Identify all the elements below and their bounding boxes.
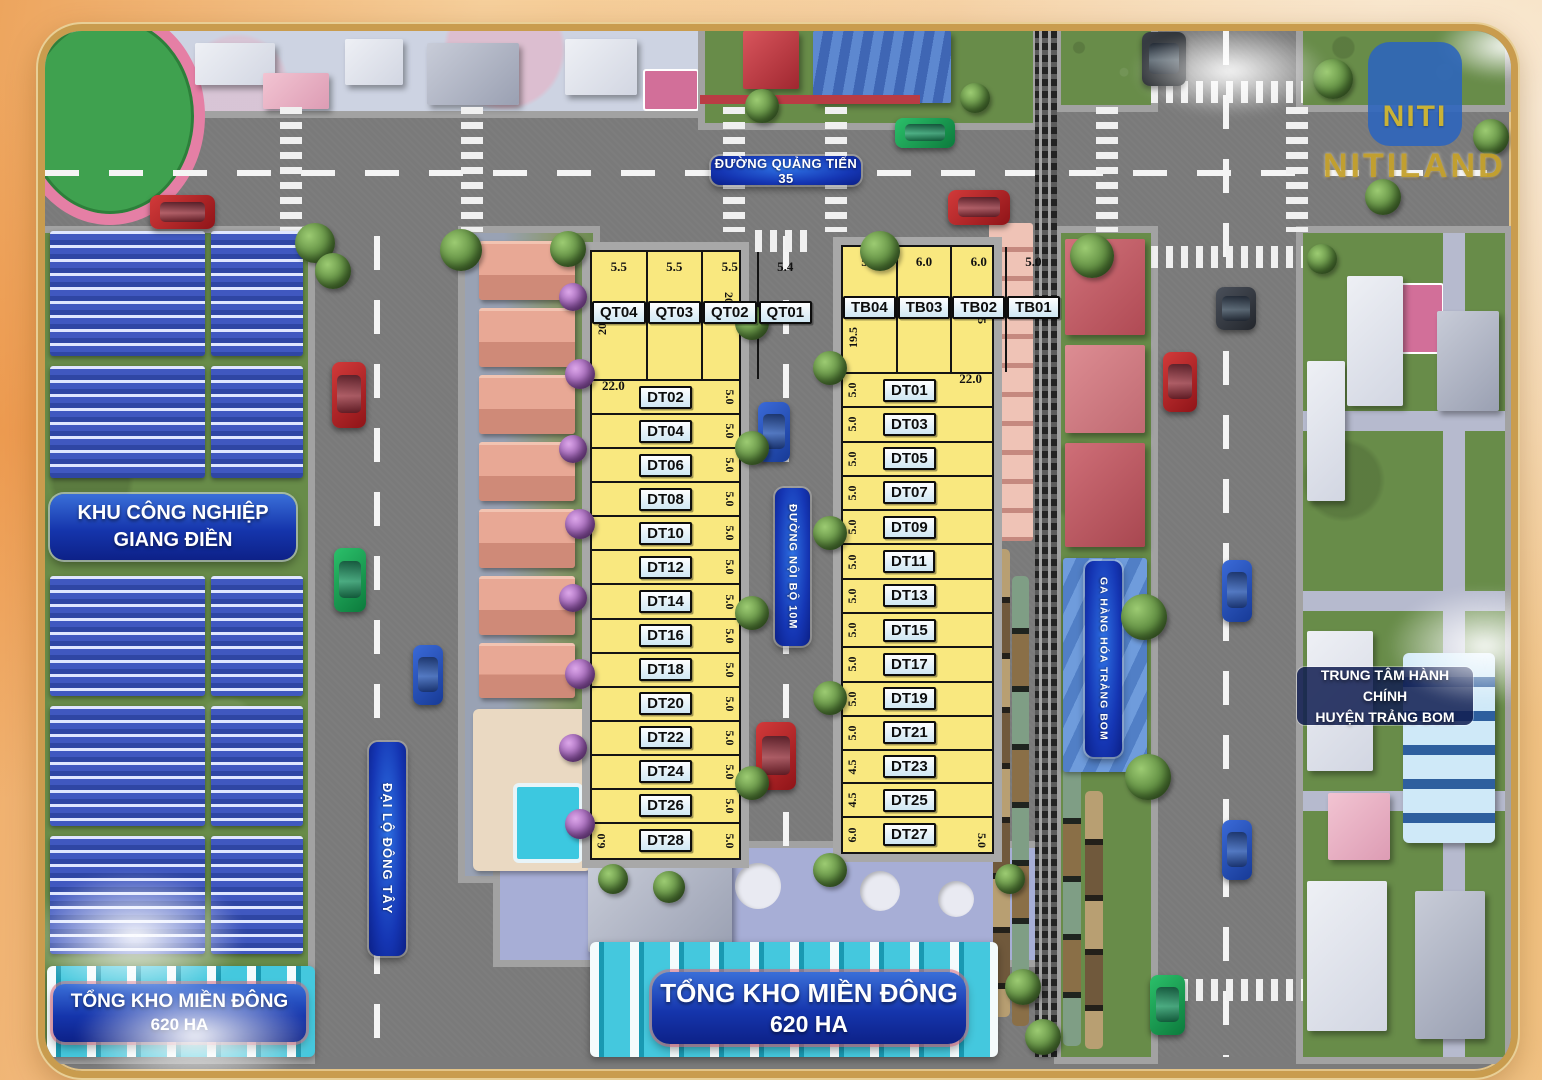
plot-row[interactable]: 5.0 DT17: [843, 646, 992, 680]
dim-label: 5.0: [845, 485, 860, 500]
map-frame: 5.5 QT04 5.5 QT03 5.5 QT02 5.4 QT01: [38, 24, 1518, 1078]
tree: [440, 229, 482, 271]
car: [334, 548, 366, 612]
banner-line: TRUNG TÂM HÀNH CHÍNH: [1297, 665, 1473, 707]
plot-row[interactable]: 5.0 DT03: [843, 406, 992, 440]
industrial-warehouse: [50, 366, 205, 478]
plot-label: DT04: [639, 420, 692, 443]
dt-rows: 5.0 DT01 5.0 DT03 5.0 DT05 5.0: [843, 372, 992, 852]
tree: [550, 231, 586, 267]
dim-label: 5.0: [722, 526, 737, 541]
plot-row[interactable]: DT26 5.0: [592, 788, 739, 822]
plot-row[interactable]: 5.0 DT19: [843, 681, 992, 715]
crosswalk: [461, 107, 483, 232]
dim-label: 22.0: [959, 371, 982, 387]
tree: [813, 516, 847, 550]
dim-label: 19.5: [846, 327, 861, 348]
tree: [1121, 594, 1167, 640]
dim-label: 5.0: [845, 554, 860, 569]
train-wagons: [1085, 791, 1103, 1049]
dim-label: 5.0: [722, 628, 737, 643]
plot-row[interactable]: DT08 5.0: [592, 481, 739, 515]
plot-label: DT08: [639, 488, 692, 511]
flower-tree: [559, 283, 587, 311]
dim-label: 5.0: [722, 492, 737, 507]
plot-row[interactable]: 5.0 DT09: [843, 509, 992, 543]
plot-label: DT23: [883, 755, 936, 778]
banner-line: 620 HA: [151, 1014, 209, 1036]
nitiland-logo-text: NITILAND: [1323, 147, 1503, 186]
banner-line: GIANG ĐIỀN: [114, 527, 233, 554]
plot-row[interactable]: 4.5 DT23: [843, 749, 992, 782]
plot-row[interactable]: DT22 5.0: [592, 720, 739, 754]
dim-label: 5.0: [845, 691, 860, 706]
masterplan-map: 5.5 QT04 5.5 QT03 5.5 QT02 5.4 QT01: [45, 31, 1497, 1057]
dim-label: 5.0: [722, 390, 737, 405]
tree: [735, 596, 769, 630]
plot-label: DT21: [883, 721, 936, 744]
tree: [995, 864, 1025, 894]
crosswalk: [1151, 246, 1303, 268]
villa: [479, 375, 575, 434]
car: [413, 645, 443, 705]
plot-label: DT05: [883, 447, 936, 470]
qt-plot-row: 5.5 QT04 5.5 QT03 5.5 QT02 5.4 QT01: [592, 252, 739, 379]
plot-label: DT10: [639, 522, 692, 545]
dim-label: 5.0: [722, 798, 737, 813]
campus-path: [1303, 591, 1505, 611]
crosswalk: [1286, 107, 1308, 232]
plot-label: DT11: [883, 550, 935, 573]
dt-rows: DT02 5.0 DT04 5.0 DT06 5.0 DT08: [592, 379, 739, 858]
car: [1216, 287, 1256, 330]
dim-label: 5.0: [845, 417, 860, 432]
plot-row[interactable]: DT14 5.0: [592, 583, 739, 617]
tree: [1025, 1019, 1061, 1055]
dim-label: 5.0: [722, 833, 737, 848]
car: [150, 195, 215, 229]
building: [263, 73, 329, 109]
plot-label: DT09: [883, 516, 936, 539]
plot-row[interactable]: 5.0 DT21: [843, 715, 992, 749]
dim-label: 5.0: [722, 696, 737, 711]
station-top-green: [1061, 24, 1151, 105]
plot-label: DT07: [883, 481, 936, 504]
plot-row[interactable]: DT20 5.0: [592, 686, 739, 720]
villa: [479, 509, 575, 568]
dim-label: 5.0: [722, 730, 737, 745]
dim-label: 5.0: [722, 594, 737, 609]
plot[interactable]: 5.0 TB01: [1005, 247, 1060, 372]
banner-line: HUYỆN TRẢNG BOM: [1315, 707, 1454, 728]
tree: [735, 431, 769, 465]
niti-logo-icon: NITI: [1368, 42, 1462, 146]
tree: [1307, 244, 1337, 274]
plot-row[interactable]: DT06 5.0: [592, 447, 739, 481]
train-wagons: [1012, 576, 1029, 1026]
plot[interactable]: 6.0 TB02: [950, 247, 1005, 372]
tb-plot-row: 5.0 TB04 6.0 TB03 6.0 TB02 5.0 TB01: [843, 247, 992, 372]
industrial-warehouse: [211, 836, 303, 954]
plaza-pond: [860, 871, 900, 911]
banner-line: TỔNG KHO MIỀN ĐÔNG: [660, 977, 958, 1010]
plot-label: DT25: [883, 789, 936, 812]
tree: [1125, 754, 1171, 800]
dim-label: 5.0: [1025, 254, 1041, 270]
tree: [813, 853, 847, 887]
dim-label: 5.0: [722, 424, 737, 439]
plot[interactable]: 5.4 QT01: [757, 252, 813, 379]
building: [345, 39, 403, 85]
industrial-warehouse: [50, 576, 205, 696]
tree: [1313, 59, 1353, 99]
banner-line: 620 HA: [770, 1010, 848, 1039]
car: [332, 362, 366, 428]
plot-row[interactable]: 4.5 DT25: [843, 782, 992, 815]
flower-tree: [559, 584, 587, 612]
plot[interactable]: 6.0 TB03: [896, 247, 951, 372]
admin-building: [1307, 361, 1345, 501]
dim-label: 5.0: [845, 725, 860, 740]
plot-label: DT26: [639, 794, 692, 817]
flower-tree: [565, 659, 595, 689]
admin-building: [1415, 891, 1485, 1039]
car: [1222, 820, 1252, 880]
dim-label: 5.0: [845, 520, 860, 535]
plot-row[interactable]: 6.0 DT28 5.0: [592, 822, 739, 858]
dim-label: 5.5: [722, 259, 738, 275]
dim-label: 5.0: [845, 657, 860, 672]
dim-label: 4.5: [845, 793, 860, 808]
plot-row[interactable]: 5.0 DT07: [843, 475, 992, 509]
dim-label: 4.5: [845, 759, 860, 774]
plot-row[interactable]: DT18 5.0: [592, 652, 739, 686]
crosswalk: [1096, 107, 1118, 232]
red-wall: [700, 95, 920, 104]
tree: [813, 351, 847, 385]
plot-row[interactable]: DT04 5.0: [592, 413, 739, 447]
tree: [813, 681, 847, 715]
admin-building: [1328, 793, 1390, 860]
plot-row[interactable]: DT12 5.0: [592, 549, 739, 583]
plot-label: DT14: [639, 590, 692, 613]
plot-label: TB04: [843, 296, 896, 319]
tree: [1070, 234, 1114, 278]
car: [948, 190, 1010, 225]
tree: [653, 871, 685, 903]
plot-label: DT20: [639, 692, 692, 715]
red-building: [743, 31, 799, 89]
industrial-warehouse: [211, 706, 303, 826]
building: [565, 39, 637, 95]
industrial-warehouse: [211, 366, 303, 478]
mega-warehouse-banner: TỔNG KHO MIỀN ĐÔNG 620 HA: [652, 972, 966, 1044]
dim-label: 6.0: [971, 254, 987, 270]
dim-label: 5.4: [777, 259, 793, 275]
school-court: [643, 69, 699, 111]
plot-label: TB01: [1007, 296, 1060, 319]
warehouse-small-banner: TỔNG KHO MIỀN ĐÔNG 620 HA: [53, 984, 306, 1042]
dim-label: 5.5: [611, 259, 627, 275]
dim-label: 6.0: [594, 833, 609, 848]
plot-label: DT18: [639, 658, 692, 681]
plot-label: DT28: [639, 829, 692, 852]
plot-label: DT02: [639, 386, 692, 409]
dim-label: 6.0: [845, 827, 860, 842]
station-sign: GA HÀNG HÓA TRẢNG BOM: [1085, 561, 1122, 757]
dim-label: 5.0: [845, 623, 860, 638]
plot-label: DT17: [883, 653, 936, 676]
car: [1163, 352, 1197, 412]
car: [1142, 32, 1186, 86]
plot-row[interactable]: 5.0 DT11: [843, 543, 992, 577]
building: [427, 43, 519, 105]
car: [1150, 975, 1185, 1035]
industrial-warehouse: [50, 836, 205, 954]
plot-row[interactable]: 5.0 DT15: [843, 612, 992, 646]
tree: [735, 766, 769, 800]
plot-row[interactable]: DT24 5.0: [592, 754, 739, 788]
tree: [1005, 969, 1041, 1005]
villa: [479, 643, 575, 698]
car: [1222, 560, 1252, 622]
train-wagons: [1063, 766, 1081, 1046]
flower-tree: [565, 509, 595, 539]
plot-label: TB03: [898, 296, 951, 319]
plot-label: DT19: [883, 687, 936, 710]
flower-tree: [565, 359, 595, 389]
railway-track: [1035, 31, 1057, 1057]
plot-row[interactable]: DT16 5.0: [592, 618, 739, 652]
dim-label: 22.0: [602, 378, 625, 394]
plot-label: DT12: [639, 556, 692, 579]
dim-label: 5.0: [722, 662, 737, 677]
crosswalk: [755, 230, 811, 252]
admin-building: [1437, 311, 1499, 411]
road-sign-quang-tien: ĐƯỜNG QUẢNG TIẾN 35: [711, 156, 861, 185]
tree: [860, 231, 900, 271]
plot[interactable]: 5.5 QT03: [646, 252, 702, 379]
plot-row[interactable]: DT10 5.0: [592, 515, 739, 549]
road-centerline: [1223, 31, 1229, 1057]
flower-tree: [565, 809, 595, 839]
banner-line: TỔNG KHO MIỀN ĐÔNG: [71, 990, 288, 1015]
tree: [745, 89, 779, 123]
plot-label: QT01: [759, 301, 813, 324]
right-plot-block: 5.0 TB04 6.0 TB03 6.0 TB02 5.0 TB01: [841, 245, 994, 854]
plot-label: DT03: [883, 413, 936, 436]
plot-row[interactable]: 6.0 DT27 5.0: [843, 816, 992, 852]
car: [895, 118, 955, 148]
industrial-banner: KHU CÔNG NGHIỆP GIANG ĐIỀN: [50, 494, 296, 560]
plot-label: DT27: [883, 823, 936, 846]
industrial-warehouse: [211, 231, 303, 356]
plot-label: QT03: [648, 301, 702, 324]
left-plot-block: 5.5 QT04 5.5 QT03 5.5 QT02 5.4 QT01: [590, 250, 741, 860]
flower-tree: [559, 734, 587, 762]
plot-row[interactable]: 5.0 DT13: [843, 578, 992, 612]
crosswalk: [280, 107, 302, 232]
plot-label: TB02: [952, 296, 1005, 319]
industrial-warehouse: [50, 231, 205, 356]
admin-banner: TRUNG TÂM HÀNH CHÍNH HUYỆN TRẢNG BOM: [1297, 667, 1473, 725]
tree: [960, 83, 990, 113]
plot[interactable]: 5.5 QT04: [592, 252, 646, 379]
factory-blue-roof: [813, 31, 951, 103]
plot-label: QT02: [703, 301, 757, 324]
banner-line: KHU CÔNG NGHIỆP: [77, 500, 268, 527]
dim-label: 5.0: [722, 458, 737, 473]
plot-label: DT01: [883, 379, 936, 402]
plot-label: DT15: [883, 619, 936, 642]
plot-label: DT22: [639, 726, 692, 749]
road-sign-noi-bo: ĐƯỜNG NỘI BỘ 10M: [775, 488, 810, 646]
tree: [598, 864, 628, 894]
villa: [479, 308, 575, 367]
industrial-warehouse: [50, 706, 205, 826]
plaza-pond: [938, 881, 974, 917]
station-building: [1065, 345, 1145, 433]
plot-label: QT04: [592, 301, 646, 324]
road-sign-dai-lo-dong-tay: ĐẠI LỘ ĐÔNG TÂY: [369, 742, 406, 956]
station-building: [1065, 443, 1145, 547]
dim-label: 5.0: [722, 560, 737, 575]
plot-label: DT06: [639, 454, 692, 477]
dim-label: 5.0: [974, 833, 989, 848]
plot[interactable]: 5.5 QT02: [701, 252, 757, 379]
industrial-warehouse: [211, 576, 303, 696]
admin-building: [1347, 276, 1403, 406]
dim-label: 6.0: [916, 254, 932, 270]
tree: [315, 253, 351, 289]
dim-label: 5.5: [666, 259, 682, 275]
plaza-pond: [735, 863, 781, 909]
admin-building: [1307, 881, 1387, 1031]
plot-label: DT16: [639, 624, 692, 647]
dim-label: 5.0: [845, 588, 860, 603]
plot-label: DT13: [883, 584, 936, 607]
flower-tree: [559, 435, 587, 463]
plot-row[interactable]: 5.0 DT05: [843, 441, 992, 475]
dim-label: 5.0: [845, 383, 860, 398]
dim-label: 5.0: [845, 451, 860, 466]
plot-label: DT24: [639, 760, 692, 783]
